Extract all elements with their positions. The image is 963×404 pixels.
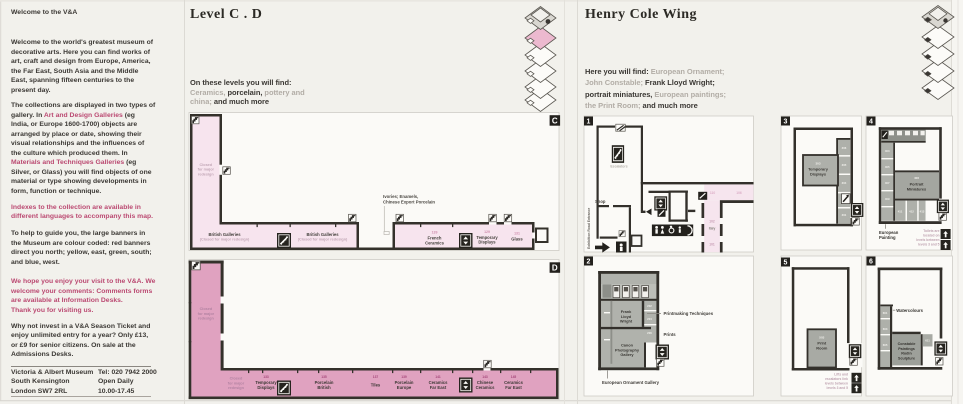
svg-text:Ivories; Enamels,: Ivories; Enamels,: [383, 194, 418, 199]
svg-text:204: 204: [647, 317, 652, 321]
svg-text:101: 101: [709, 243, 715, 247]
svg-text:Closed: Closed: [200, 307, 213, 311]
svg-text:143: 143: [482, 375, 488, 379]
svg-text:Sculpture: Sculpture: [898, 356, 915, 360]
svg-text:135: 135: [321, 375, 327, 379]
svg-text:403: 403: [885, 149, 890, 153]
svg-text:Prints: Prints: [664, 332, 677, 337]
svg-text:D: D: [552, 264, 558, 273]
svg-text:Chinese Export Porcelain: Chinese Export Porcelain: [383, 200, 435, 205]
svg-text:Far East: Far East: [430, 385, 447, 390]
svg-text:European Ornament Gallery: European Ornament Gallery: [602, 380, 660, 385]
svg-text:Displays: Displays: [810, 171, 826, 176]
svg-text:Watercolours: Watercolours: [896, 308, 923, 313]
svg-text:129: 129: [484, 230, 490, 234]
svg-text:Toilets are: Toilets are: [923, 229, 939, 233]
svg-text:503: 503: [819, 336, 824, 340]
svg-text:Shop: Shop: [595, 199, 606, 204]
svg-text:Ceramics: Ceramics: [476, 385, 496, 390]
svg-text:145: 145: [511, 375, 517, 379]
svg-text:British: British: [317, 385, 331, 390]
svg-text:2: 2: [587, 259, 591, 266]
svg-text:British Galleries: British Galleries: [306, 232, 339, 237]
svg-text:Exhibition Road Entrance: Exhibition Road Entrance: [587, 208, 591, 249]
svg-text:Far East: Far East: [505, 385, 522, 390]
svg-text:133: 133: [263, 375, 269, 379]
svg-text:303: 303: [815, 162, 820, 166]
svg-text:407: 407: [885, 181, 890, 185]
svg-text:601: 601: [883, 311, 888, 315]
svg-text:Europe: Europe: [397, 385, 412, 390]
svg-text:110: 110: [710, 191, 715, 195]
svg-text:Wright: Wright: [620, 319, 633, 324]
svg-text:305: 305: [842, 163, 847, 167]
svg-text:levels 3 and 5: levels 3 and 5: [827, 386, 849, 390]
svg-text:Closed: Closed: [199, 163, 212, 167]
svg-text:Miniatures: Miniatures: [907, 186, 926, 191]
svg-text:Escalators: Escalators: [610, 165, 627, 169]
svg-text:137: 137: [373, 375, 379, 379]
svg-text:304: 304: [842, 181, 847, 185]
svg-text:for major: for major: [198, 312, 215, 316]
svg-text:141: 141: [435, 375, 441, 379]
svg-text:located on: located on: [923, 234, 940, 238]
svg-text:6: 6: [869, 259, 873, 266]
svg-text:102: 102: [709, 220, 715, 224]
svg-text:for major: for major: [228, 381, 245, 385]
svg-text:605: 605: [883, 343, 888, 347]
svg-text:5: 5: [784, 260, 788, 267]
svg-text:Glass: Glass: [511, 237, 523, 242]
svg-text:301: 301: [842, 213, 847, 217]
svg-text:redesign: redesign: [228, 386, 245, 390]
svg-text:412: 412: [909, 210, 914, 214]
svg-text:Paintings: Paintings: [898, 347, 915, 351]
svg-text:redesign: redesign: [198, 172, 215, 176]
svg-text:131: 131: [514, 232, 520, 236]
svg-text:106: 106: [736, 191, 742, 195]
svg-text:3: 3: [784, 119, 788, 126]
svg-text:(Closed for major redesign): (Closed for major redesign): [298, 238, 348, 242]
svg-text:1: 1: [587, 119, 591, 126]
svg-text:611: 611: [925, 339, 930, 343]
svg-text:British Galleries: British Galleries: [208, 232, 241, 237]
svg-text:Tiles: Tiles: [371, 382, 381, 387]
svg-text:redesign: redesign: [198, 317, 215, 321]
svg-text:4: 4: [869, 119, 873, 126]
svg-text:C: C: [552, 116, 558, 125]
svg-text:Painting: Painting: [879, 235, 896, 240]
svg-text:Gallery: Gallery: [620, 352, 634, 357]
svg-text:Closed: Closed: [230, 377, 243, 381]
svg-text:Rodin: Rodin: [901, 352, 912, 356]
svg-text:levels between: levels between: [916, 238, 939, 242]
svg-text:Italy: Italy: [709, 227, 716, 231]
svg-text:139: 139: [401, 375, 407, 379]
svg-text:escalators link: escalators link: [825, 377, 848, 381]
svg-text:Printmaking Techniques: Printmaking Techniques: [664, 311, 714, 316]
svg-text:Displays: Displays: [257, 385, 275, 390]
svg-text:Room: Room: [816, 345, 828, 350]
svg-text:206: 206: [647, 331, 652, 335]
svg-text:306: 306: [842, 146, 847, 150]
svg-text:levels 3 and 5: levels 3 and 5: [918, 243, 940, 247]
svg-text:413: 413: [920, 210, 925, 214]
svg-text:Constable: Constable: [898, 342, 916, 346]
svg-text:406: 406: [914, 176, 919, 180]
svg-text:for major: for major: [198, 168, 215, 172]
svg-text:411: 411: [898, 210, 903, 214]
svg-text:409: 409: [885, 197, 890, 201]
svg-text:Ceramics: Ceramics: [425, 240, 445, 245]
svg-text:Displays: Displays: [478, 240, 496, 245]
svg-text:202: 202: [647, 304, 652, 308]
svg-text:Lifts and: Lifts and: [834, 373, 848, 377]
svg-text:139: 139: [432, 231, 438, 235]
svg-text:levels between: levels between: [825, 382, 848, 386]
svg-text:603: 603: [883, 327, 888, 331]
svg-text:(Closed for major redesign): (Closed for major redesign): [200, 238, 250, 242]
svg-text:405: 405: [885, 165, 890, 169]
